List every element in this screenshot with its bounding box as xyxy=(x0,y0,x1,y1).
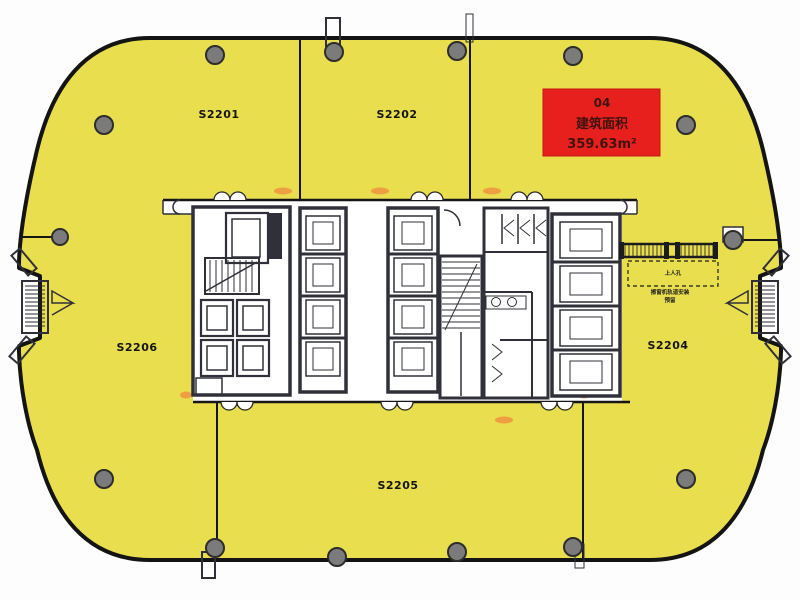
wall-chunk xyxy=(268,213,282,259)
track-note-line2: 预留 xyxy=(664,296,676,304)
elevator-bank-a xyxy=(300,208,346,392)
elevator-bank-east xyxy=(552,214,620,396)
unit-number: 04 xyxy=(594,96,611,110)
room-label-s2201: S2201 xyxy=(198,108,239,121)
washroom-block xyxy=(484,208,548,398)
room-label-s2202: S2202 xyxy=(376,108,417,121)
core-left-block xyxy=(193,207,290,395)
elevator-bank-b xyxy=(388,208,438,392)
floor-plan-canvas: 上人孔 擦窗机轨道安装 预留 xyxy=(0,0,800,600)
track-note-line1: 擦窗机轨道安装 xyxy=(651,288,690,296)
room-label-s2206: S2206 xyxy=(116,341,157,354)
unit-area-tag: 04 建筑面积 359.63m² xyxy=(543,89,660,156)
unit-area-value: 359.63m² xyxy=(567,137,636,152)
unit-area-caption: 建筑面积 xyxy=(576,116,628,132)
room-label-s2204: S2204 xyxy=(647,339,688,352)
roof-hatch-label: 上人孔 xyxy=(665,269,682,277)
room-label-s2205: S2205 xyxy=(377,479,418,492)
floor-plan-drawing: 上人孔 擦窗机轨道安装 预留 xyxy=(0,0,800,600)
